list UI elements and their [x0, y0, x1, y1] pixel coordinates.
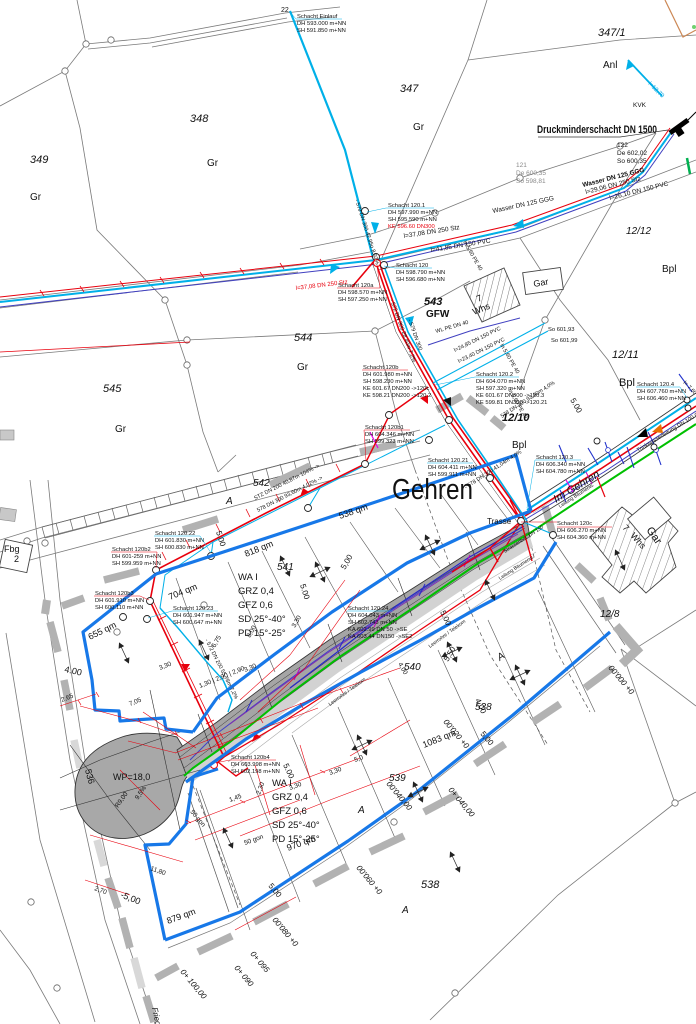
- svg-text:WA I: WA I: [238, 572, 258, 583]
- svg-text:Gr: Gr: [115, 424, 127, 435]
- svg-text:DH 601.947 m+NN: DH 601.947 m+NN: [173, 613, 222, 619]
- svg-text:12/12: 12/12: [626, 226, 651, 237]
- svg-text:So 601,93: So 601,93: [548, 327, 574, 333]
- svg-text:SH 604.780 m+NN: SH 604.780 m+NN: [536, 469, 585, 475]
- svg-text:SH 595.590 m+NN: SH 595.590 m+NN: [388, 217, 437, 223]
- svg-text:SH 591.850 m+NN: SH 591.850 m+NN: [297, 28, 346, 34]
- svg-text:DH 604.070 m+NN: DH 604.070 m+NN: [476, 379, 525, 385]
- svg-text:Fbg: Fbg: [4, 544, 20, 554]
- svg-text:DH 606.340 m+NN: DH 606.340 m+NN: [536, 462, 585, 468]
- svg-text:347/1: 347/1: [598, 27, 626, 39]
- svg-text:SH 599.911 m+NN: SH 599.911 m+NN: [428, 472, 476, 478]
- svg-text:542: 542: [253, 478, 270, 489]
- svg-text:121: 121: [516, 162, 527, 169]
- svg-text:PD 15°-25°: PD 15°-25°: [238, 628, 286, 639]
- svg-text:DH 601.910 m+NN: DH 601.910 m+NN: [95, 598, 144, 604]
- svg-text:DH 601.830 m+NN: DH 601.830 m+NN: [155, 538, 204, 544]
- svg-text:Bpl: Bpl: [619, 377, 635, 389]
- svg-text:SH 597.250 m+NN: SH 597.250 m+NN: [338, 297, 387, 303]
- svg-text:SH 604.360 m+NN: SH 604.360 m+NN: [557, 535, 606, 541]
- svg-text:SH 597.320 m+NN: SH 597.320 m+NN: [476, 386, 525, 392]
- svg-text:KE 598.21 DN200 ->120.2: KE 598.21 DN200 ->120.2: [363, 393, 431, 399]
- svg-text:Gr: Gr: [413, 122, 425, 133]
- svg-text:DH 597.990 m+NN: DH 597.990 m+NN: [388, 210, 437, 216]
- svg-text:KE 601.67 DN200 ->120c: KE 601.67 DN200 ->120c: [363, 386, 429, 392]
- svg-text:SH 599.323 m+NN: SH 599.323 m+NN: [365, 439, 414, 445]
- svg-text:DH 604.346 m+NN: DH 604.346 m+NN: [365, 432, 414, 438]
- svg-text:SH 598.230 m+NN: SH 598.230 m+NN: [363, 379, 412, 385]
- svg-text:DH 598.570 m+NN: DH 598.570 m+NN: [338, 290, 387, 296]
- svg-text:543: 543: [424, 296, 442, 308]
- svg-text:544: 544: [294, 332, 312, 344]
- svg-text:SD 25°-40°: SD 25°-40°: [272, 820, 320, 831]
- svg-text:SH 596.680 m+NN: SH 596.680 m+NN: [396, 277, 445, 283]
- svg-text:SD 25°-40°: SD 25°-40°: [238, 614, 286, 625]
- svg-text:DH 601.980 m+NN: DH 601.980 m+NN: [363, 372, 412, 378]
- svg-text:Bpl: Bpl: [662, 264, 676, 275]
- svg-text:348: 348: [190, 113, 209, 125]
- svg-text:GFZ 0,6: GFZ 0,6: [272, 806, 307, 817]
- svg-text:122: 122: [617, 142, 628, 149]
- svg-text:So 600,35: So 600,35: [617, 158, 647, 165]
- svg-text:12/8: 12/8: [600, 609, 620, 620]
- svg-text:SH 599.959 m+NN: SH 599.959 m+NN: [112, 561, 161, 567]
- svg-text:SH 600.647 m+NN: SH 600.647 m+NN: [173, 620, 222, 626]
- svg-text:2: 2: [14, 554, 19, 564]
- svg-text:PD 15°-25°: PD 15°-25°: [272, 834, 320, 845]
- svg-text:347: 347: [400, 83, 419, 95]
- svg-text:KA 602.99 DN 50 ->SE: KA 602.99 DN 50 ->SE: [348, 627, 408, 633]
- svg-text:349: 349: [30, 154, 48, 166]
- svg-text:A: A: [225, 496, 233, 507]
- svg-text:KVK: KVK: [633, 102, 647, 109]
- svg-text:DH 603.998 m+NN: DH 603.998 m+NN: [231, 762, 280, 768]
- svg-text:A: A: [401, 905, 409, 916]
- svg-text:De 602,02: De 602,02: [617, 150, 647, 157]
- svg-text:SH 600.110 m+NN: SH 600.110 m+NN: [95, 605, 143, 611]
- svg-text:SH 602.743 m+NN: SH 602.743 m+NN: [348, 620, 397, 626]
- svg-text:Trasse: Trasse: [487, 517, 512, 526]
- svg-text:12/11: 12/11: [612, 349, 639, 361]
- svg-text:DH 604.411 m+NN: DH 604.411 m+NN: [428, 465, 477, 471]
- svg-text:Gr: Gr: [207, 158, 219, 169]
- svg-text:22: 22: [281, 7, 289, 14]
- svg-text:538: 538: [421, 879, 440, 891]
- svg-text:GFZ 0,6: GFZ 0,6: [238, 600, 273, 611]
- svg-text:GRZ 0,4: GRZ 0,4: [272, 792, 308, 803]
- svg-text:DH 593.000 m+NN: DH 593.000 m+NN: [297, 21, 346, 27]
- svg-text:DH 601-259 m+NN: DH 601-259 m+NN: [112, 554, 161, 560]
- svg-text:DH 604.043 m+NN: DH 604.043 m+NN: [348, 613, 397, 619]
- svg-text:Anl: Anl: [603, 60, 617, 71]
- svg-text:SH 600.830 m+NN: SH 600.830 m+NN: [155, 545, 204, 551]
- svg-text:SH 602.198 m+NN: SH 602.198 m+NN: [231, 769, 280, 775]
- svg-text:DH 598.790 m+NN: DH 598.790 m+NN: [396, 270, 445, 276]
- svg-text:DH 607.760 m+NN: DH 607.760 m+NN: [637, 389, 686, 395]
- svg-text:KA 603.44 DN150 ->SE2: KA 603.44 DN150 ->SE2: [348, 634, 412, 640]
- svg-text:Gehren: Gehren: [392, 474, 473, 506]
- svg-text:Gr: Gr: [30, 192, 42, 203]
- svg-text:De 600,35: De 600,35: [516, 170, 546, 177]
- svg-text:Gr: Gr: [297, 362, 309, 373]
- svg-text:545: 545: [103, 383, 122, 395]
- svg-text:DH 606.270 m+NN: DH 606.270 m+NN: [557, 528, 606, 534]
- svg-text:Schacht 120c: Schacht 120c: [557, 521, 592, 527]
- svg-text:So 598,81: So 598,81: [516, 178, 546, 185]
- svg-text:SH 606.460 m+NN: SH 606.460 m+NN: [637, 396, 686, 402]
- svg-text:So 601,99: So 601,99: [551, 338, 577, 344]
- svg-text:GRZ 0,4: GRZ 0,4: [238, 586, 274, 597]
- svg-text:A: A: [357, 805, 365, 816]
- svg-text:GFW: GFW: [426, 309, 450, 320]
- svg-text:WP=18,0: WP=18,0: [113, 772, 150, 782]
- svg-text:KE 599.81 DN300 ->120.21: KE 599.81 DN300 ->120.21: [476, 400, 547, 406]
